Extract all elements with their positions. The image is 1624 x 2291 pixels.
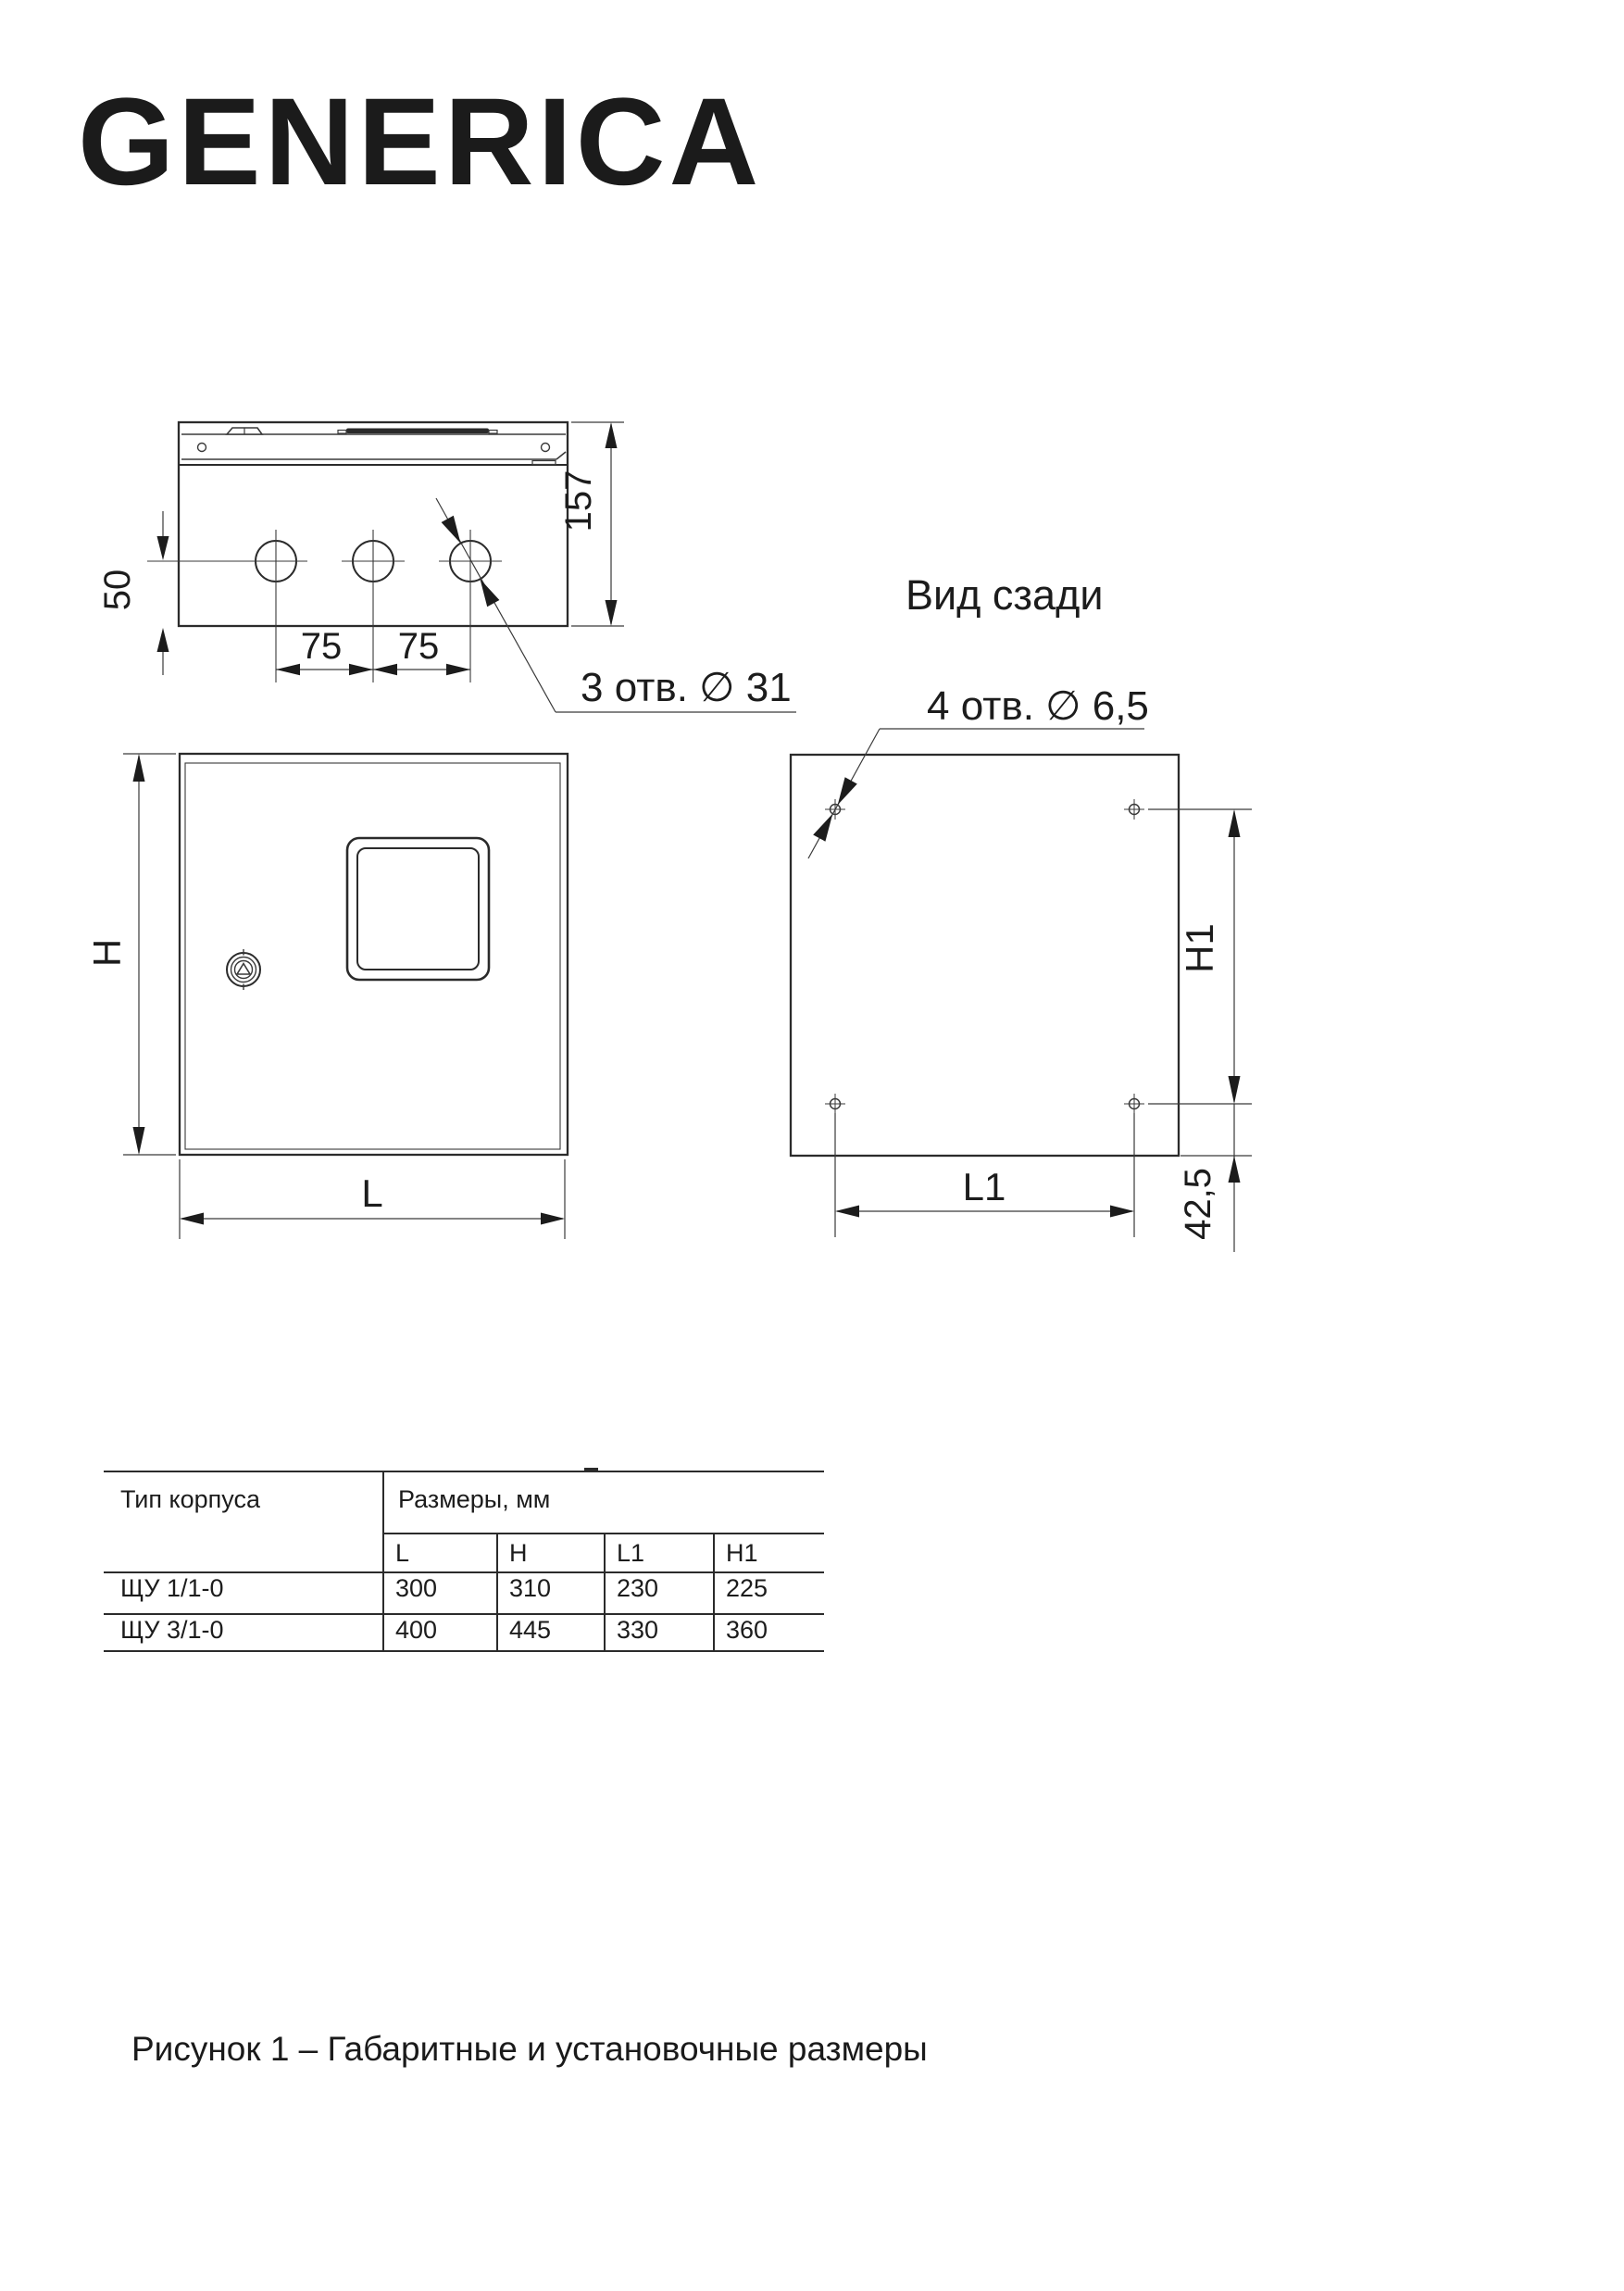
door-lock bbox=[227, 949, 260, 990]
dim-H1-label: H1 bbox=[1178, 923, 1221, 973]
table-subheader-L1: L1 bbox=[617, 1539, 644, 1568]
dim-157-label: 157 bbox=[558, 470, 599, 532]
dimensions-table: Тип корпуса Размеры, мм L H L1 H1 ЩУ 1/1… bbox=[104, 1471, 824, 1652]
dim-L1-label: L1 bbox=[963, 1165, 1006, 1208]
table-row1-type: ЩУ 1/1-0 bbox=[120, 1574, 224, 1603]
dim-50-label: 50 bbox=[97, 570, 138, 611]
handle-bar bbox=[346, 429, 489, 434]
meter-window-inner bbox=[357, 848, 479, 970]
table-row2-H1: 360 bbox=[726, 1616, 768, 1645]
dim-42-5-label: 42,5 bbox=[1178, 1168, 1218, 1240]
table-row2-type: ЩУ 3/1-0 bbox=[120, 1616, 224, 1645]
table-row1-H1: 225 bbox=[726, 1574, 768, 1603]
holes-label-top-view: 3 отв. ∅ 31 bbox=[581, 665, 792, 710]
dimension-L: L bbox=[180, 1159, 565, 1239]
dimension-H: H bbox=[85, 754, 176, 1155]
top-view: 50 75 75 157 bbox=[97, 422, 796, 712]
table-row1-L1: 230 bbox=[617, 1574, 658, 1603]
table-subheader-L: L bbox=[395, 1539, 409, 1568]
meter-window-outer bbox=[347, 838, 489, 980]
dim-75a-label: 75 bbox=[301, 626, 343, 667]
dim-H-label: H bbox=[85, 939, 129, 967]
table-row2-H: 445 bbox=[509, 1616, 551, 1645]
dimension-42-5: 42,5 bbox=[1178, 1104, 1252, 1252]
holes-label-rear-view: 4 отв. ∅ 6,5 bbox=[927, 683, 1149, 729]
holes-callout-rear-view: 4 отв. ∅ 6,5 bbox=[808, 683, 1149, 858]
table-col2-header: Размеры, мм bbox=[398, 1485, 550, 1514]
latch-detail bbox=[532, 461, 556, 465]
dim-L-label: L bbox=[361, 1171, 382, 1215]
dimension-L1: L1 bbox=[835, 1113, 1134, 1237]
mounting-holes bbox=[825, 799, 1144, 1114]
front-view: H L bbox=[85, 754, 568, 1239]
dimension-50: 50 bbox=[97, 511, 169, 675]
table-subheader-H: H bbox=[509, 1539, 528, 1568]
screw-hole-left bbox=[198, 444, 206, 452]
table-row1-L: 300 bbox=[395, 1574, 437, 1603]
dimension-H1: H1 bbox=[1148, 809, 1252, 1104]
rear-view: Вид сзади bbox=[791, 571, 1252, 1252]
table-subheader-H1: H1 bbox=[726, 1539, 758, 1568]
figure-caption: Рисунок 1 – Габаритные и установочные ра… bbox=[131, 2030, 928, 2069]
rear-view-title: Вид сзади bbox=[906, 571, 1103, 619]
table-row2-L1: 330 bbox=[617, 1616, 658, 1645]
table-row1-H: 310 bbox=[509, 1574, 551, 1603]
top-border-tick bbox=[584, 1468, 598, 1472]
datasheet-page: GENERICA bbox=[0, 0, 1624, 2291]
table-row2-L: 400 bbox=[395, 1616, 437, 1645]
technical-drawing: 50 75 75 157 bbox=[0, 0, 1624, 2291]
rear-view-body bbox=[791, 755, 1179, 1156]
table-col1-header: Тип корпуса bbox=[120, 1485, 260, 1514]
holes-callout-top-view: 3 отв. ∅ 31 bbox=[436, 498, 796, 712]
screw-hole-right bbox=[542, 444, 550, 452]
dim-75b-label: 75 bbox=[398, 626, 440, 667]
